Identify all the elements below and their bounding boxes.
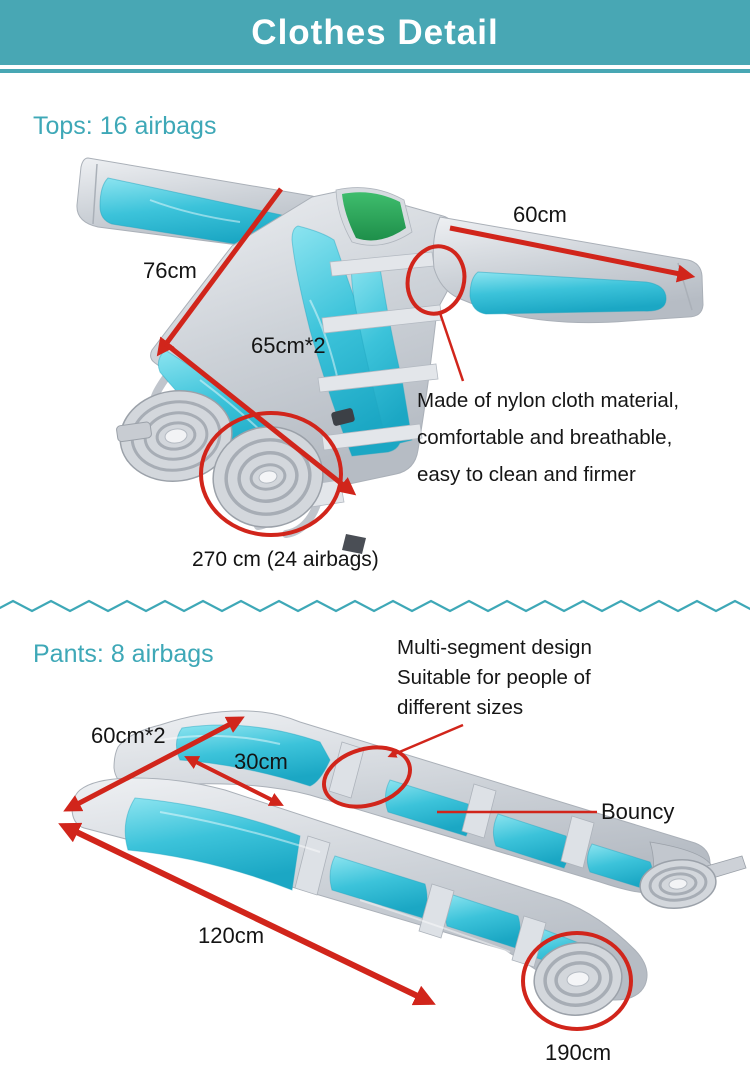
note-line: Made of nylon cloth material, [417,382,679,419]
measure-label-hip-width: 60cm*2 [91,723,166,749]
note-line: different sizes [397,693,592,723]
jacket-illustration [77,158,703,554]
tops-material-note: Made of nylon cloth material, comfortabl… [417,382,679,493]
note-line: comfortable and breathable, [417,419,679,456]
product-illustration-canvas [0,0,750,1086]
pants-illustration [72,711,746,1021]
leader-line-material-note [440,313,463,381]
pants-multisegment-note: Multi-segment design Suitable for people… [397,633,592,723]
measure-label-body-width: 65cm*2 [251,333,326,359]
bouncy-label: Bouncy [601,799,674,825]
measure-label-leg-length: 120cm [198,923,264,949]
note-line: Multi-segment design [397,633,592,663]
measure-label-sleeve-length: 60cm [513,202,567,228]
wavy-divider [0,601,750,611]
tops-hose-caption: 270 cm (24 airbags) [192,548,379,572]
note-line: easy to clean and firmer [417,456,679,493]
measure-label-body-height: 76cm [143,258,197,284]
product-detail-page: Clothes Detail Tops: 16 airbags Pants: 8… [0,0,750,1086]
measure-label-pants-hose-length: 190cm [545,1040,611,1066]
note-line: Suitable for people of [397,663,592,693]
measure-label-segment-width: 30cm [234,749,288,775]
